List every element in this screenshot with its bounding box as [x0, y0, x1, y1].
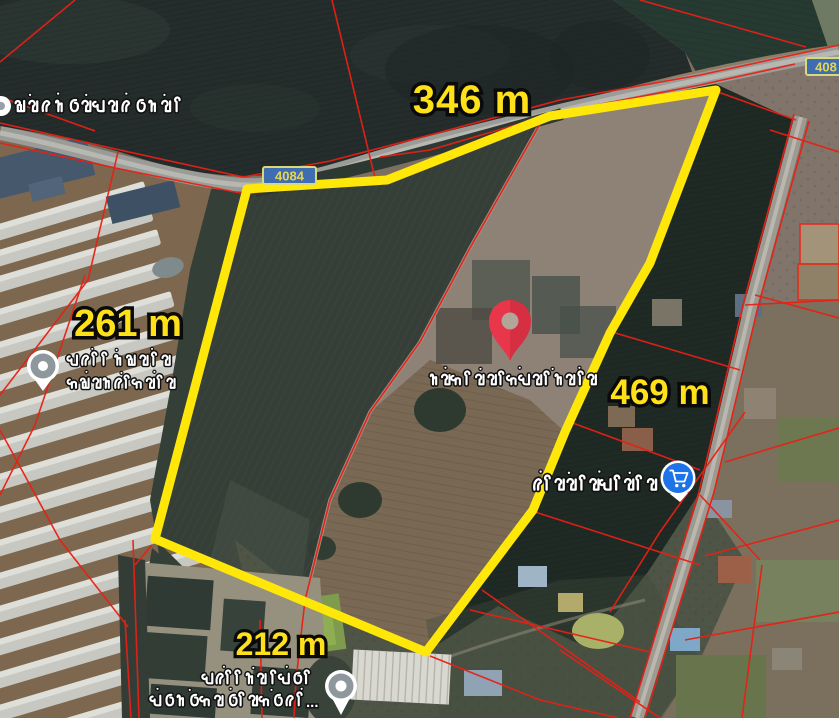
- svg-text:261 m: 261 m: [74, 303, 182, 345]
- svg-text:212 m: 212 m: [236, 626, 327, 662]
- svg-text:408: 408: [815, 60, 837, 75]
- svg-text:4084: 4084: [275, 169, 305, 184]
- svg-text:...: ...: [306, 694, 319, 711]
- svg-text:469 m: 469 m: [610, 373, 709, 412]
- svg-text:346 m: 346 m: [413, 78, 531, 122]
